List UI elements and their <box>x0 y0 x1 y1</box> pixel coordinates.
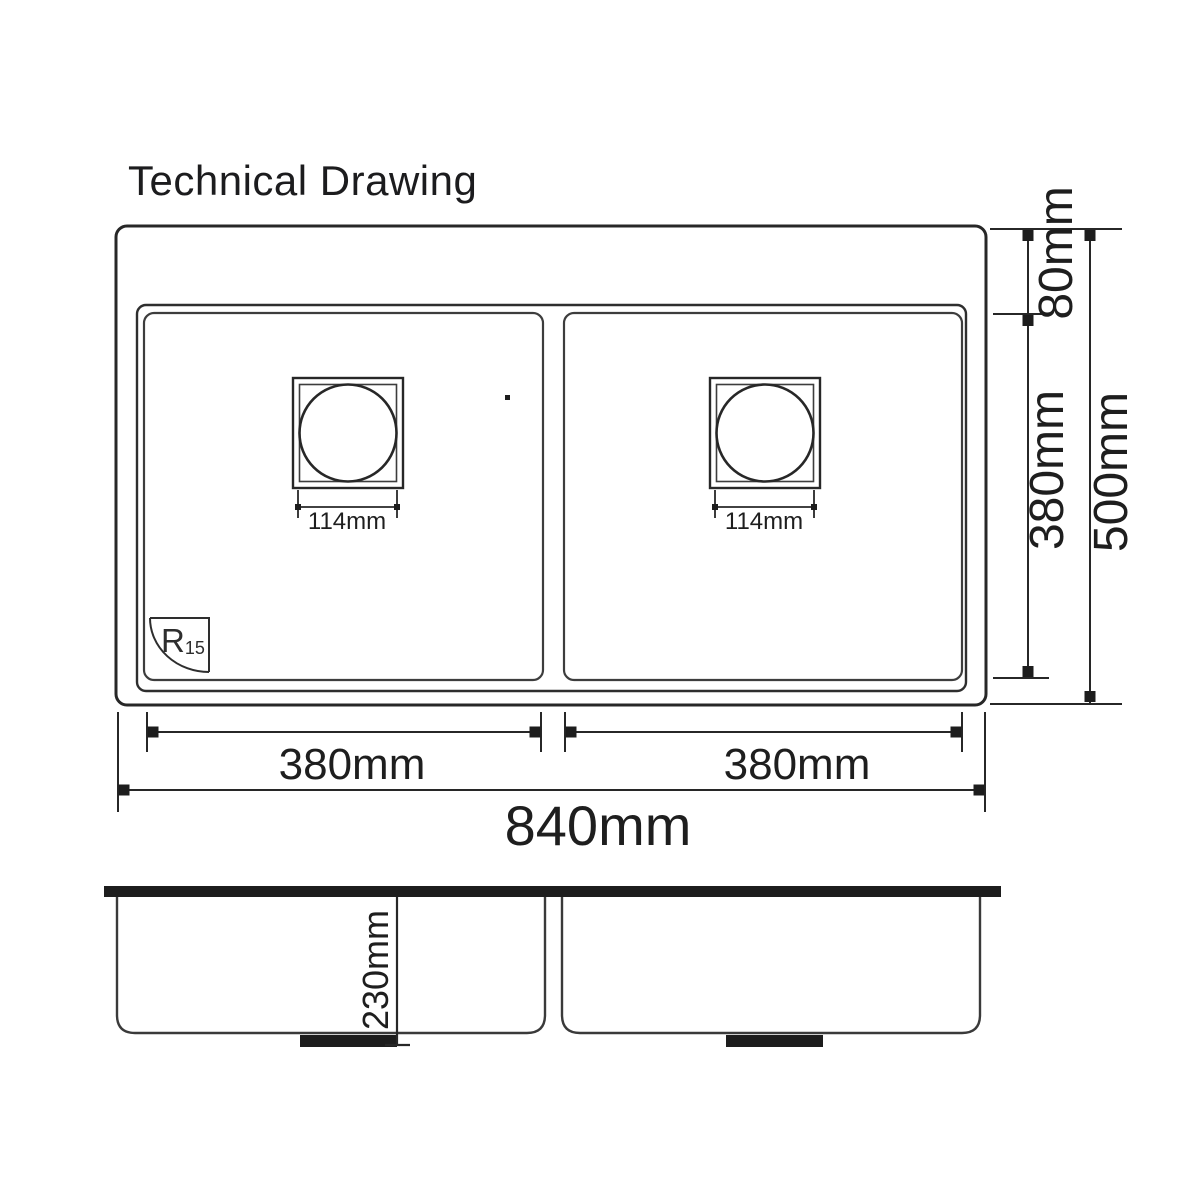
dim-label-right-drain: 114mm <box>725 510 803 534</box>
page-title: Technical Drawing <box>128 160 477 202</box>
dim-label-right-bowl-width: 380mm <box>724 743 871 787</box>
dim-label-bowl-depth: 380mm <box>1024 390 1072 550</box>
countertop-bar <box>104 886 1001 897</box>
left-bowl-profile <box>117 897 545 1033</box>
corner-radius-label: R15 <box>161 622 205 660</box>
right-drain-circle <box>717 385 814 482</box>
dim-label-rim-height: 80mm <box>1033 186 1081 319</box>
sink-rim-outline <box>116 226 986 705</box>
left-drain <box>293 378 403 488</box>
left-drain-mark <box>300 1035 397 1047</box>
dim-label-overall-depth: 500mm <box>1088 392 1136 552</box>
technical-drawing-page: Technical Drawing 80mm 380mm 500mm 114mm… <box>0 0 1200 1200</box>
right-drain <box>710 378 820 488</box>
dim-label-overall-width: 840mm <box>505 798 692 854</box>
dim-label-left-bowl-width: 380mm <box>279 743 426 787</box>
left-drain-circle <box>300 385 397 482</box>
dim-label-depth: 230mm <box>358 910 394 1030</box>
right-bowl-profile <box>562 897 980 1033</box>
dim-label-left-drain: 114mm <box>308 510 386 534</box>
side-view <box>104 886 1001 1047</box>
plan-view <box>116 226 986 705</box>
reference-dot <box>505 395 510 400</box>
right-drain-mark <box>726 1035 823 1047</box>
bowl-cutout-outline <box>137 305 966 691</box>
right-bowl-outline <box>564 313 962 680</box>
